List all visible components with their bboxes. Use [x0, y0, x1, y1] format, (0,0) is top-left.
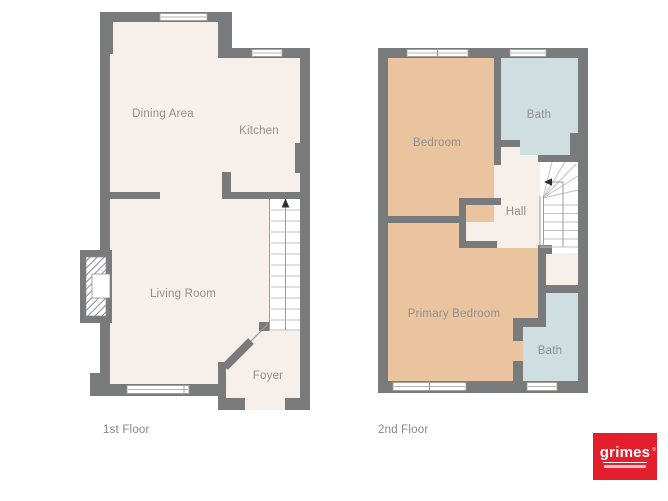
room-label-living-room: Living Room: [123, 288, 243, 300]
logo-brand-text: grimes: [600, 444, 650, 461]
logo-tagline: [604, 465, 646, 468]
bath-upper-window: [510, 50, 546, 57]
room-label-bath-upper: Bath: [489, 109, 589, 121]
room-label-dining-area: Dining Area: [103, 108, 223, 120]
first-floor-rooms: [110, 22, 300, 410]
floorplan-page: Dining Area Kitchen Living Room Foyer Be…: [0, 0, 668, 501]
living-room-window: [127, 386, 189, 394]
firebox: [92, 274, 110, 298]
room-label-kitchen: Kitchen: [209, 125, 309, 137]
foyer-floor: [222, 330, 300, 398]
doorway-strip: [160, 192, 222, 199]
floor-plan-first: [80, 12, 310, 410]
grimes-logo: grimes®: [593, 433, 657, 480]
registered-trademark-icon: ®: [652, 443, 656, 458]
room-label-bath-lower: Bath: [500, 345, 600, 357]
dining-window: [160, 14, 207, 21]
room-label-hall: Hall: [466, 206, 566, 218]
caption-first-floor: 1st Floor: [103, 424, 150, 436]
bath-upper-floor: [501, 58, 578, 140]
floorplan-drawing: [0, 0, 668, 501]
primary-bedroom-floor: [388, 223, 466, 381]
bath-lower-window: [527, 383, 557, 391]
front-door-opening: [245, 398, 285, 410]
floor-plan-second: [378, 48, 588, 393]
kitchen-window: [252, 50, 282, 57]
bedroom-window: [407, 50, 468, 57]
fireplace: [80, 250, 112, 323]
primary-bedroom-window: [393, 383, 466, 391]
bath-lower-floor: [545, 293, 578, 381]
caption-second-floor: 2nd Floor: [378, 424, 428, 436]
room-label-primary-bedroom: Primary Bedroom: [374, 308, 534, 320]
dining-area-floor: [110, 22, 218, 192]
room-label-foyer: Foyer: [218, 370, 318, 382]
room-label-bedroom: Bedroom: [387, 137, 487, 149]
logo-rule: [603, 462, 647, 463]
understair-closet-floor: [545, 253, 578, 285]
